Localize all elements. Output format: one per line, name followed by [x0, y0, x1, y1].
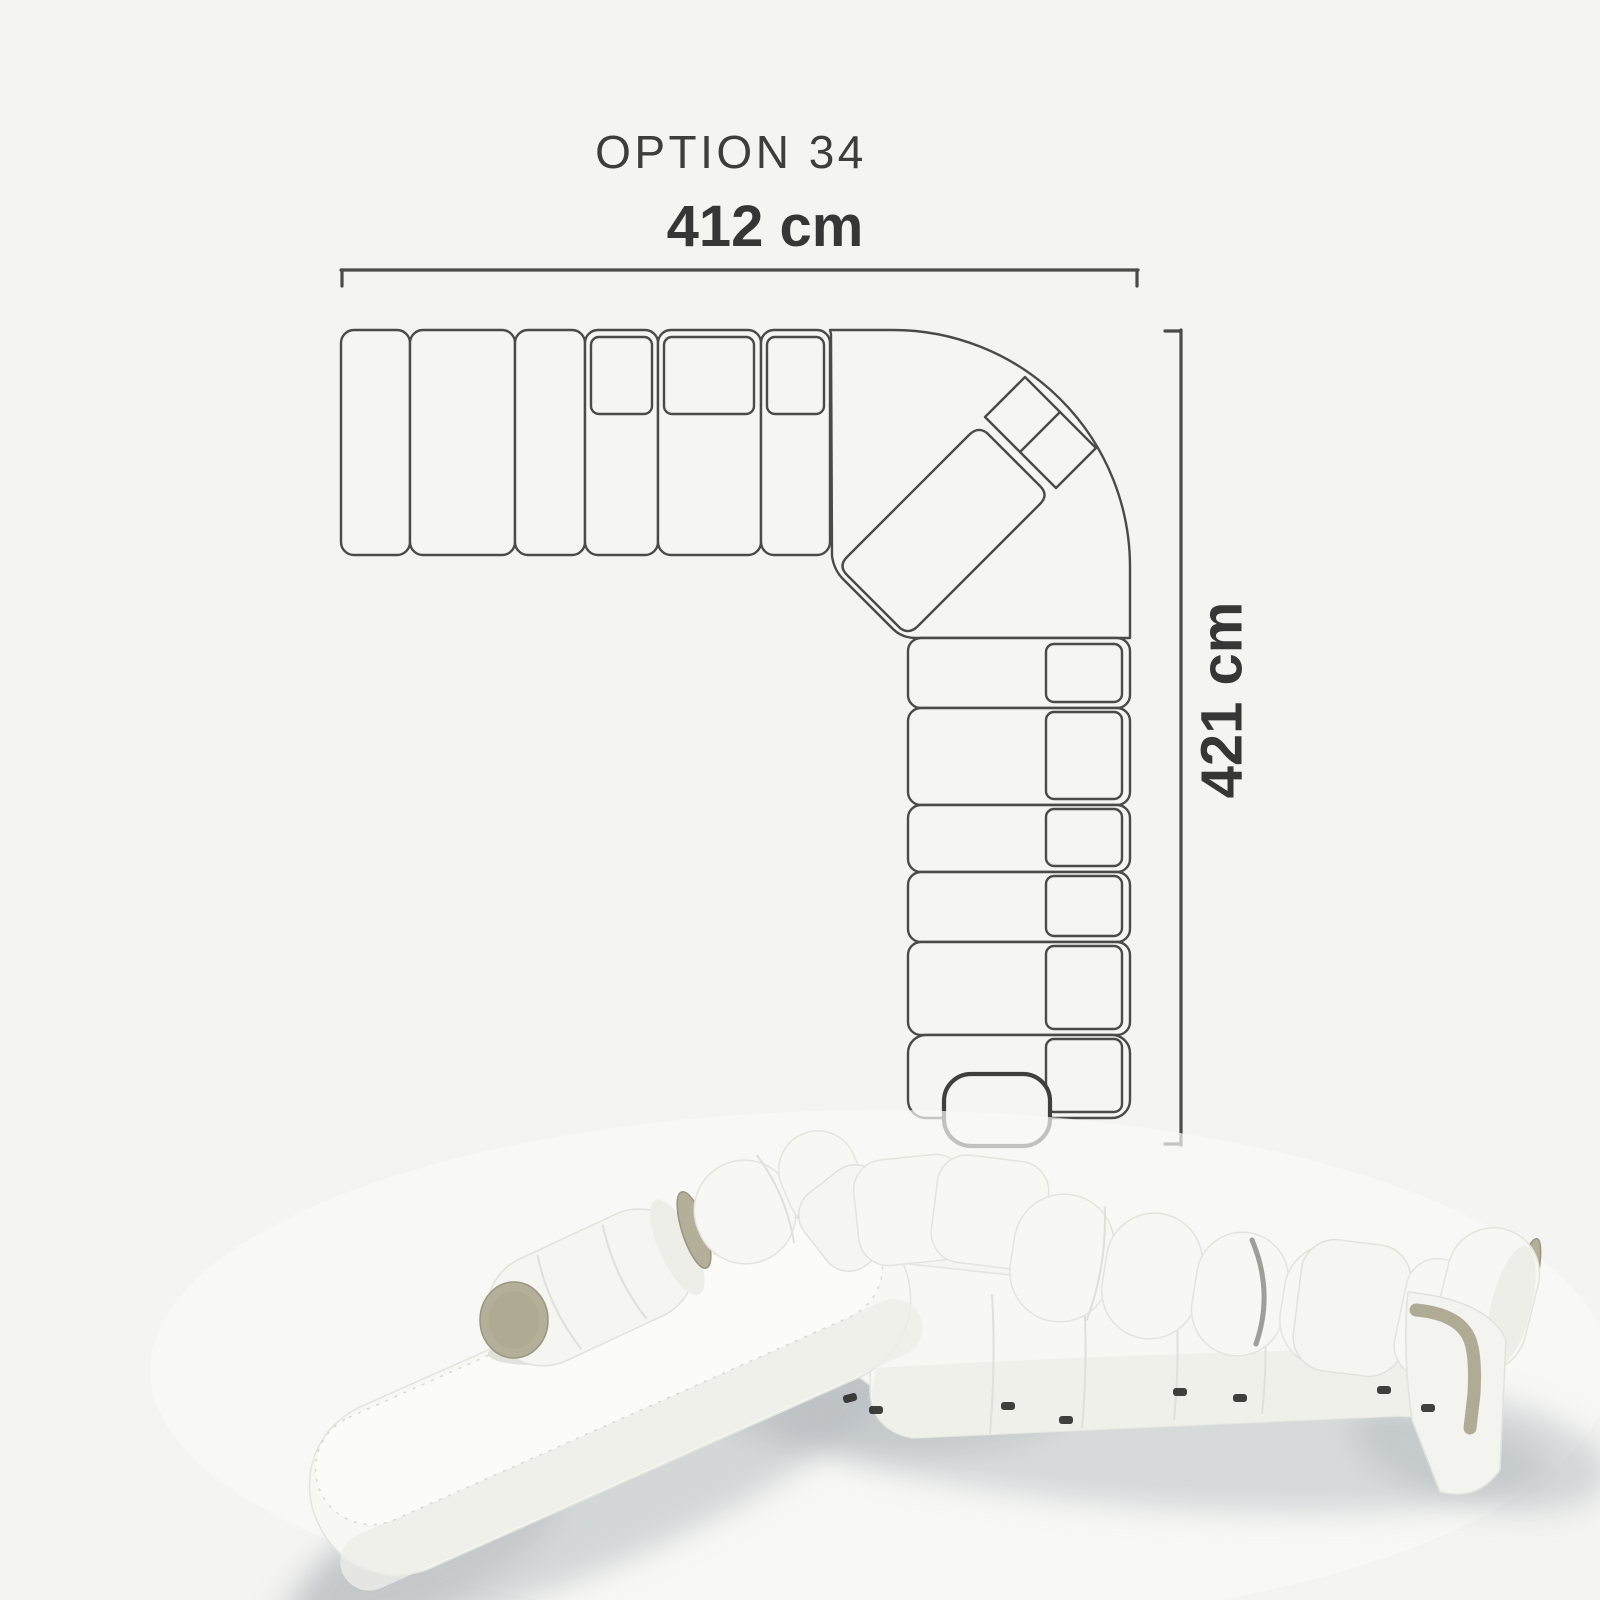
plan-backrest-cushion — [1046, 946, 1122, 1029]
plan-module — [515, 330, 585, 555]
plan-backrest-cushion — [1046, 1039, 1122, 1112]
plan-backrest-cushion — [1046, 876, 1122, 936]
plan-corner-module — [830, 330, 1130, 638]
foot — [1421, 1404, 1435, 1412]
page-title: OPTION 34 — [595, 126, 867, 178]
plan-backrest-cushion — [591, 337, 652, 414]
dimension-depth: 421 cm — [1165, 330, 1255, 1145]
plan-right-column — [908, 638, 1130, 1146]
dimension-depth-label: 421 cm — [1190, 602, 1255, 799]
pillow — [1289, 1236, 1414, 1380]
sofa-render — [150, 1110, 1600, 1600]
plan-backrest-cushion — [1046, 809, 1122, 866]
dimension-width-label: 412 cm — [667, 194, 864, 259]
sofa-option-diagram: OPTION 34 412 cm 421 cm — [0, 0, 1600, 1600]
plan-backrest-cushion — [1046, 644, 1122, 702]
foot — [1377, 1386, 1391, 1394]
plan-backrest-cushion — [664, 337, 754, 414]
foot — [1059, 1416, 1073, 1424]
plan-module — [341, 330, 410, 555]
plan-top-row — [341, 330, 830, 555]
plan-module — [410, 330, 515, 555]
dimension-width: 412 cm — [341, 194, 1138, 286]
bolster-tan-cap-inner — [489, 1291, 539, 1349]
plan-backrest-cushion — [767, 337, 824, 414]
foot — [1233, 1394, 1247, 1402]
floor-plan: 412 cm 421 cm — [341, 194, 1255, 1146]
foot — [1173, 1388, 1187, 1396]
foot — [869, 1406, 883, 1414]
plan-backrest-cushion — [1046, 712, 1122, 799]
foot — [1001, 1402, 1015, 1410]
page-background: OPTION 34 412 cm 421 cm — [0, 0, 1600, 1600]
